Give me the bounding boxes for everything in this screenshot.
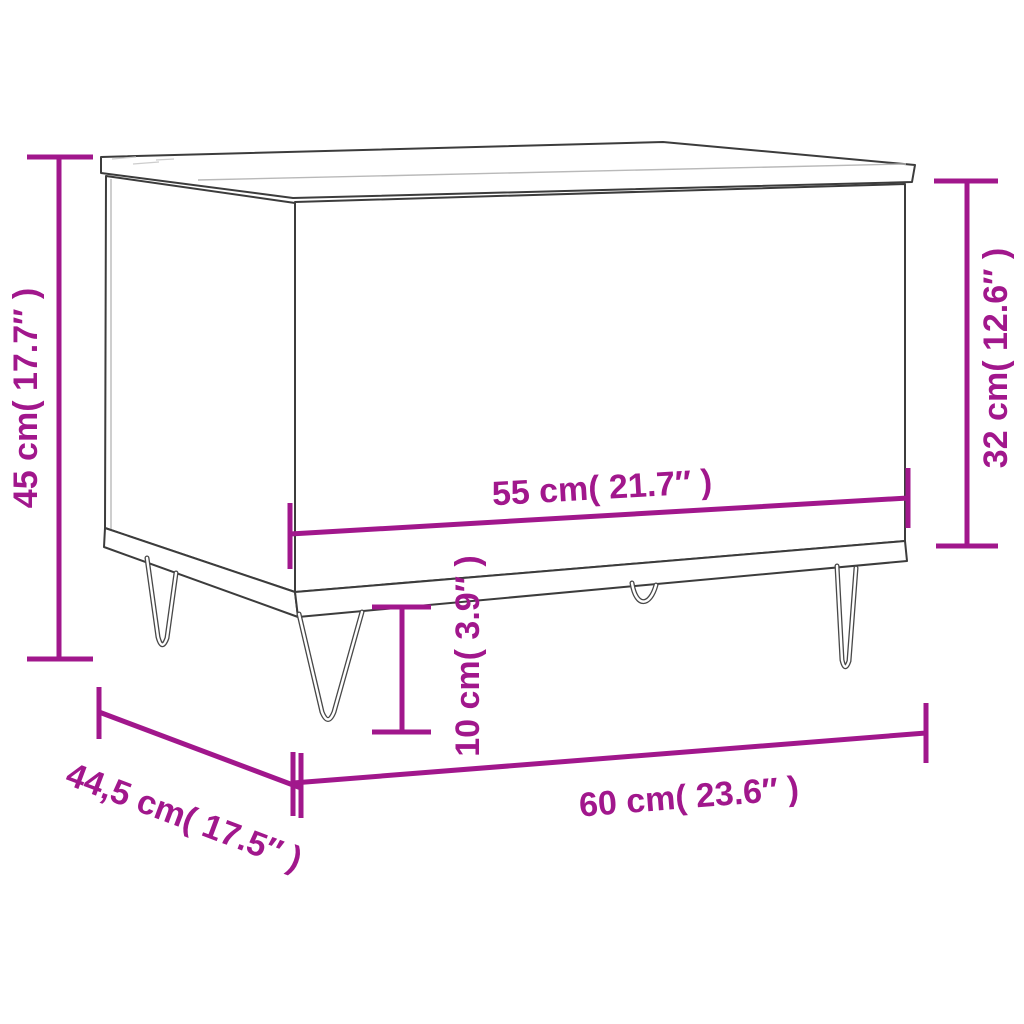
dimension-diagram: 45 cm( 17.7″ ) 32 cm( 12.6″ ) 55 cm( 21.…	[0, 0, 1024, 1024]
leg-front-right	[837, 566, 856, 667]
side-panel	[105, 176, 295, 592]
dim-label-body-height: 32 cm( 12.6″ )	[979, 248, 1013, 468]
dim-leg-height-line	[372, 607, 431, 732]
dim-label-total-height: 45 cm( 17.7″ )	[9, 288, 43, 508]
dim-label-leg-height: 10 cm( 3.9″ )	[451, 555, 485, 757]
cabinet-body	[104, 176, 907, 617]
leg-front-left	[299, 612, 362, 720]
